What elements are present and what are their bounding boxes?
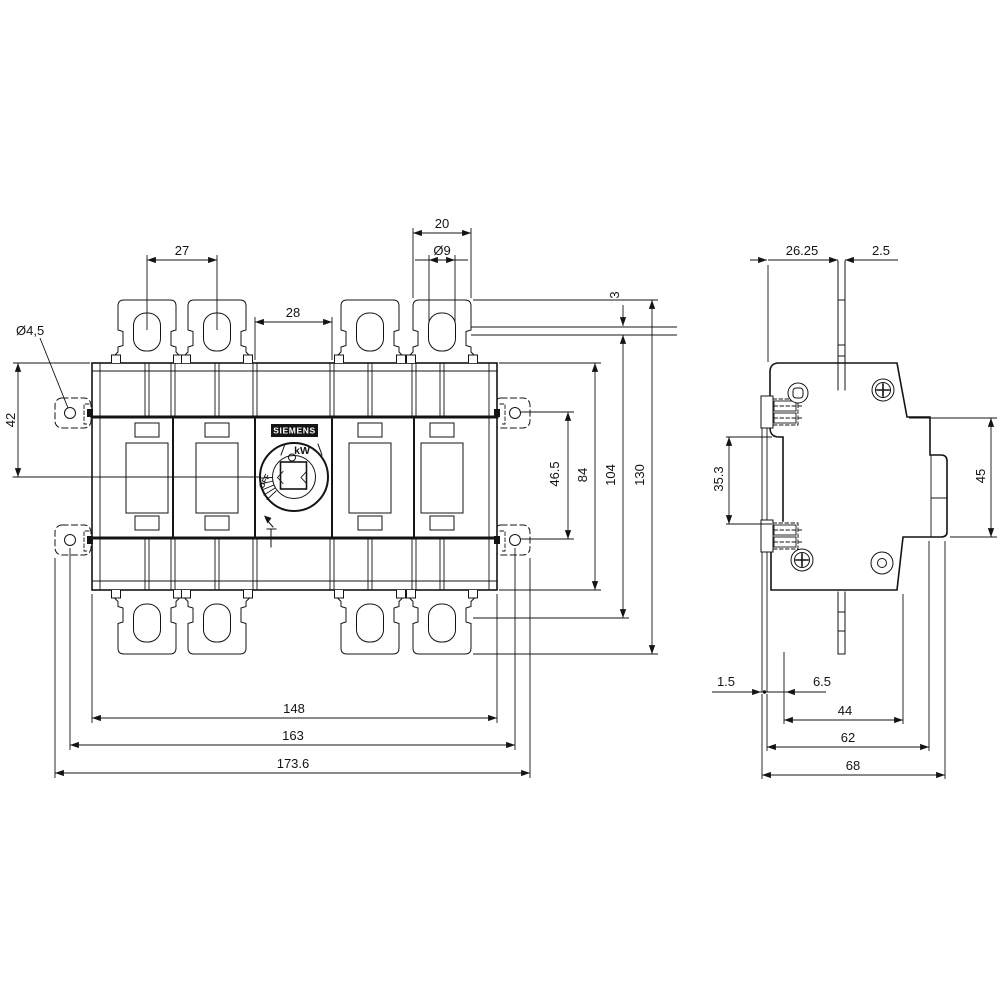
dim-label-depth-total: 68 (846, 758, 860, 773)
operating-shaft-bottom (838, 592, 845, 654)
square-hole-boss (788, 383, 808, 403)
dim-label-tab-thickness: 3 (607, 291, 622, 298)
dim-label-lug-width: 20 (435, 216, 449, 231)
mounting-tab-top-left (55, 398, 91, 428)
dim-label-mount-spacing: 163 (282, 728, 304, 743)
phillips-screw-icon (872, 379, 894, 401)
dim-label-lug-hole: Ø9 (433, 243, 450, 258)
dim-label-top-to-center: 42 (3, 413, 18, 427)
dim-clamp-spacing: 35.3 (711, 437, 772, 524)
mounting-hole-bottom-left (65, 535, 76, 546)
mounting-hole-bottom-right (510, 535, 521, 546)
dim-tab-thickness: 3 (471, 291, 677, 335)
dim-label-depth-body: 62 (841, 730, 855, 745)
dim-label-rail-depth: 6.5 (813, 674, 831, 689)
kw-position-label: kW (294, 445, 310, 457)
dim-label-body-width: 148 (283, 701, 305, 716)
mounting-tab-bottom-left (55, 525, 91, 555)
front-view: SIEMENS kW OFF (3, 216, 677, 778)
dim-label-rail-lip: 1.5 (717, 674, 735, 689)
dim-label-pole-width: 28 (286, 305, 300, 320)
dim-label-total-width: 173.6 (277, 756, 310, 771)
bottom-lug-2 (184, 590, 250, 654)
dim-tab-hole-spacing: 46.5 (521, 412, 574, 539)
mounting-hole-top-left (65, 408, 76, 419)
bottom-lug-1 (114, 590, 180, 654)
dim-pole-width: 28 (255, 305, 332, 360)
mounting-hole-top-right (510, 408, 521, 419)
side-view: 26.25 2.5 35.3 45 1.5 (711, 243, 997, 779)
dim-label-over-lugs-height: 104 (603, 464, 618, 486)
bottom-terminals (114, 590, 475, 654)
siemens-label: SIEMENS (271, 424, 318, 437)
dim-rail-depth: 6.5 (784, 652, 831, 724)
dim-label-tab-hole-spacing: 46.5 (547, 461, 562, 486)
phillips-screw-icon (791, 549, 813, 571)
dim-mount-hole: Ø4,5 (16, 323, 68, 408)
dim-label-total-height: 130 (632, 464, 647, 486)
dim-top-to-center: 42 (3, 363, 90, 477)
top-lug-4 (409, 300, 475, 364)
dimension-drawing: SIEMENS kW OFF (0, 0, 1000, 1000)
bottom-lug-4 (409, 590, 475, 654)
dim-label-body-height: 84 (575, 468, 590, 482)
dim-label-shaft-width: 2.5 (872, 243, 890, 258)
dim-label-shaft-offset: 26.25 (786, 243, 819, 258)
dim-rail-lip: 1.5 (712, 674, 826, 692)
technical-drawing-page: SIEMENS kW OFF (0, 0, 1000, 1000)
brand-text: SIEMENS (273, 426, 315, 436)
dim-label-side-step-height: 45 (973, 469, 988, 483)
bottom-lug-3 (337, 590, 403, 654)
dim-label-mount-hole: Ø4,5 (16, 323, 44, 338)
dim-label-clamp-spacing: 35.3 (711, 466, 726, 491)
dim-total-height: 130 (473, 300, 658, 654)
top-lug-3 (337, 300, 403, 364)
dim-depth-inner: 44 (784, 594, 903, 724)
dim-label-depth-inner: 44 (838, 703, 852, 718)
dim-shaft-offset: 26.25 (750, 243, 838, 362)
round-hole-icon (871, 552, 893, 574)
front-body: SIEMENS kW OFF (13, 355, 500, 598)
dim-shaft-width: 2.5 (845, 243, 898, 260)
dim-label-lug-pitch: 27 (175, 243, 189, 258)
